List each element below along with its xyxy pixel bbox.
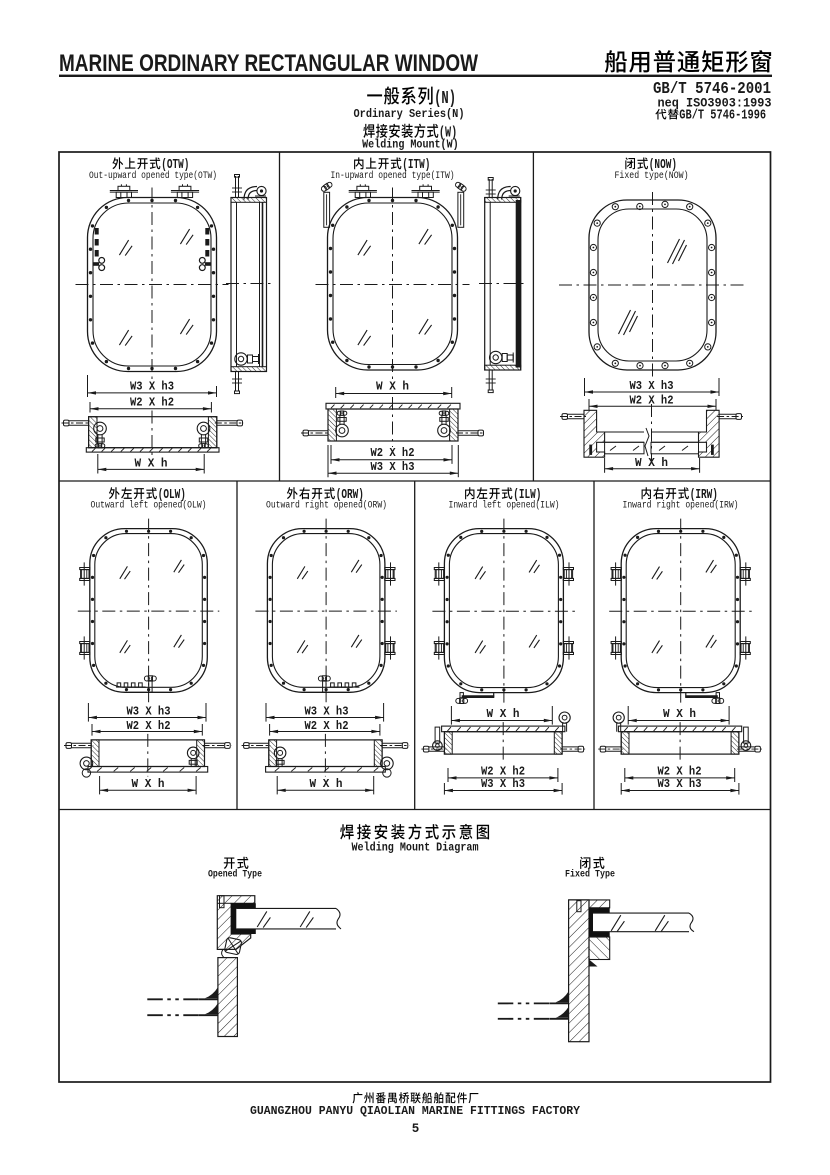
svg-text:W2 X h2: W2 X h2 [130, 395, 174, 409]
svg-text:5: 5 [412, 1121, 420, 1136]
svg-text:W2 X h2: W2 X h2 [371, 446, 415, 460]
svg-text:W X h: W X h [487, 707, 520, 721]
svg-text:In-upward opened type(ITW): In-upward opened type(ITW) [331, 170, 455, 182]
svg-text:Fixed Type: Fixed Type [565, 869, 615, 881]
svg-text:W X h: W X h [635, 456, 668, 470]
svg-text:W3 X h3: W3 X h3 [481, 777, 525, 791]
svg-text:Welding Mount(W): Welding Mount(W) [362, 138, 459, 152]
svg-text:Inward left opened(ILW): Inward left opened(ILW) [449, 499, 560, 511]
svg-text:W X h: W X h [132, 777, 165, 791]
svg-text:GB/T 5746-2001: GB/T 5746-2001 [653, 79, 771, 98]
svg-text:W X h: W X h [310, 777, 343, 791]
svg-text:GUANGZHOU PANYU QIAOLIAN MARIN: GUANGZHOU PANYU QIAOLIAN MARINE FITTINGS… [250, 1104, 581, 1118]
svg-text:W3 X h3: W3 X h3 [658, 777, 702, 791]
svg-text:Opened Type: Opened Type [208, 869, 262, 881]
svg-text:Outward right opened(ORW): Outward right opened(ORW) [266, 499, 387, 511]
svg-text:W X h: W X h [663, 707, 696, 721]
svg-text:W X h: W X h [135, 456, 168, 470]
svg-text:W3 X h3: W3 X h3 [130, 379, 174, 393]
svg-text:Outward left opened(OLW): Outward left opened(OLW) [91, 499, 207, 511]
svg-text:W2 X h2: W2 X h2 [305, 719, 349, 733]
svg-text:W X h: W X h [376, 380, 409, 394]
svg-text:Welding Mount Diagram: Welding Mount Diagram [352, 841, 479, 855]
svg-text:Out-upward opened type(OTW): Out-upward opened type(OTW) [89, 170, 217, 182]
svg-text:MARINE ORDINARY RECTANGULAR WI: MARINE ORDINARY RECTANGULAR WINDOW [59, 50, 478, 77]
svg-text:W2 X h2: W2 X h2 [127, 719, 171, 733]
svg-text:Inward right opened(IRW): Inward right opened(IRW) [623, 499, 739, 511]
svg-text:Fixed type(NOW): Fixed type(NOW) [615, 170, 689, 182]
svg-text:W3 X h3: W3 X h3 [305, 704, 349, 718]
svg-text:W3 X h3: W3 X h3 [630, 379, 674, 393]
svg-text:Ordinary Series(N): Ordinary Series(N) [354, 107, 465, 121]
svg-text:W3 X h3: W3 X h3 [371, 460, 415, 474]
svg-text:GB/T 5746-1996: GB/T 5746-1996 [679, 109, 766, 124]
svg-text:W3 X h3: W3 X h3 [127, 704, 171, 718]
